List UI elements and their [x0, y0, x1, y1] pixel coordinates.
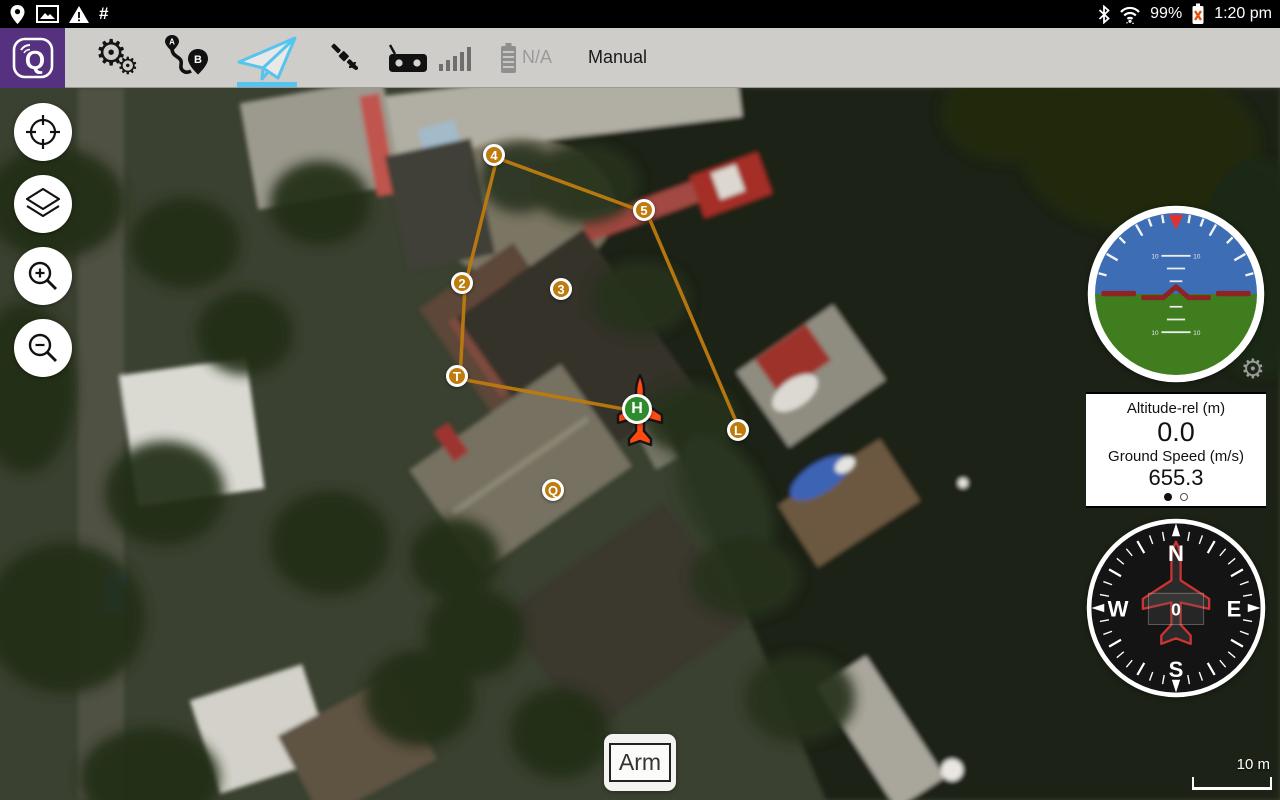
map-view[interactable]: H T2345LQ — [0, 88, 1280, 800]
zoom-in-icon — [25, 258, 61, 294]
instrument-panel[interactable]: 1010 1010 ⚙ Altitude-rel (m) 0.0 Ground … — [1084, 203, 1268, 700]
battery-status-label: N/A — [522, 47, 552, 68]
center-on-vehicle-button[interactable] — [14, 103, 72, 161]
clock-text: 1:20 pm — [1214, 5, 1272, 23]
waypoint-5[interactable]: 5 — [633, 199, 655, 221]
hash-indicator: # — [99, 4, 108, 24]
layers-icon — [23, 186, 63, 222]
active-tab-underline — [237, 82, 297, 87]
svg-text:10: 10 — [1151, 254, 1159, 261]
photo-icon — [36, 5, 59, 23]
compass-east-label: E — [1227, 596, 1242, 621]
status-bar-right: 99% 1:20 pm — [1098, 3, 1272, 25]
toolbar-battery-icon — [499, 42, 518, 74]
home-marker[interactable]: H — [622, 394, 652, 424]
artificial-horizon: 1010 1010 — [1085, 203, 1267, 385]
compass-indicator[interactable]: N E S W 0 — [1084, 516, 1268, 700]
battery-percent-text: 99% — [1150, 5, 1182, 23]
waypoint-3[interactable]: 3 — [550, 278, 572, 300]
page-dot-inactive[interactable] — [1180, 493, 1188, 501]
ground-station-screen: # 99% 1:20 pm — [0, 0, 1280, 800]
status-bar-left: # — [8, 4, 108, 25]
instrument-settings-gear-icon[interactable]: ⚙ — [1241, 356, 1265, 383]
plan-mission-button[interactable]: A B — [155, 28, 219, 88]
map-layers-button[interactable] — [14, 175, 72, 233]
bluetooth-icon — [1098, 5, 1110, 24]
warning-icon — [68, 5, 90, 24]
arm-button-label: Arm — [609, 743, 671, 782]
map-scale-label: 10 m — [1192, 756, 1270, 773]
compass-south-label: S — [1169, 657, 1184, 682]
heading-value: 0 — [1171, 599, 1181, 619]
gear-icon-small: ⚙ — [117, 54, 139, 78]
battery-status-icon — [1191, 3, 1205, 25]
compass-west-label: W — [1108, 596, 1129, 621]
svg-text:10: 10 — [1193, 330, 1201, 337]
ground-speed-value: 655.3 — [1086, 465, 1266, 491]
battery-status-button[interactable]: N/A — [499, 42, 552, 74]
fly-view-tab-active[interactable] — [231, 28, 303, 88]
location-icon — [8, 4, 27, 25]
app-toolbar: Q ⚙ ⚙ A B — [0, 28, 1280, 88]
satellite-icon — [327, 41, 361, 75]
page-dot-active[interactable] — [1164, 493, 1172, 501]
compass-north-label: N — [1168, 541, 1184, 566]
waypoint-Q[interactable]: Q — [542, 479, 564, 501]
attitude-indicator[interactable]: 1010 1010 ⚙ — [1085, 203, 1267, 385]
zoom-out-icon — [25, 330, 61, 366]
map-controls — [14, 103, 72, 377]
map-scale-rule — [1192, 777, 1272, 790]
waypoint-4[interactable]: 4 — [483, 144, 505, 166]
waypoint-L[interactable]: L — [727, 419, 749, 441]
waypoint-T[interactable]: T — [446, 365, 468, 387]
telemetry-values-card[interactable]: Altitude-rel (m) 0.0 Ground Speed (m/s) … — [1086, 392, 1266, 508]
map-scale: 10 m — [1192, 756, 1272, 790]
altitude-label: Altitude-rel (m) — [1086, 400, 1266, 417]
svg-text:10: 10 — [1151, 330, 1159, 337]
route-ab-icon: A B — [161, 33, 213, 83]
rc-controller-icon — [387, 42, 429, 74]
compass-dial: N E S W 0 — [1084, 516, 1268, 700]
altitude-value: 0.0 — [1086, 417, 1266, 448]
qgroundcontrol-logo[interactable]: Q — [0, 28, 65, 88]
gps-status-button[interactable] — [317, 28, 371, 88]
settings-button[interactable]: ⚙ ⚙ — [81, 28, 147, 88]
android-status-bar: # 99% 1:20 pm — [0, 0, 1280, 28]
ground-speed-label: Ground Speed (m/s) — [1086, 448, 1266, 465]
zoom-out-button[interactable] — [14, 319, 72, 377]
flight-mode-selector[interactable]: Manual — [588, 47, 647, 68]
svg-text:A: A — [169, 37, 175, 46]
waypoint-2[interactable]: 2 — [451, 272, 473, 294]
arm-button[interactable]: Arm — [604, 734, 676, 791]
wifi-icon — [1119, 5, 1141, 24]
paper-plane-icon — [236, 35, 298, 81]
rc-status-button[interactable] — [385, 28, 431, 88]
instrument-page-indicator — [1086, 493, 1266, 503]
qgc-logo-icon: Q — [11, 36, 55, 80]
rc-signal-bars — [439, 45, 471, 71]
crosshair-icon — [24, 113, 62, 151]
svg-text:10: 10 — [1193, 254, 1201, 261]
svg-text:B: B — [194, 54, 202, 66]
zoom-in-button[interactable] — [14, 247, 72, 305]
